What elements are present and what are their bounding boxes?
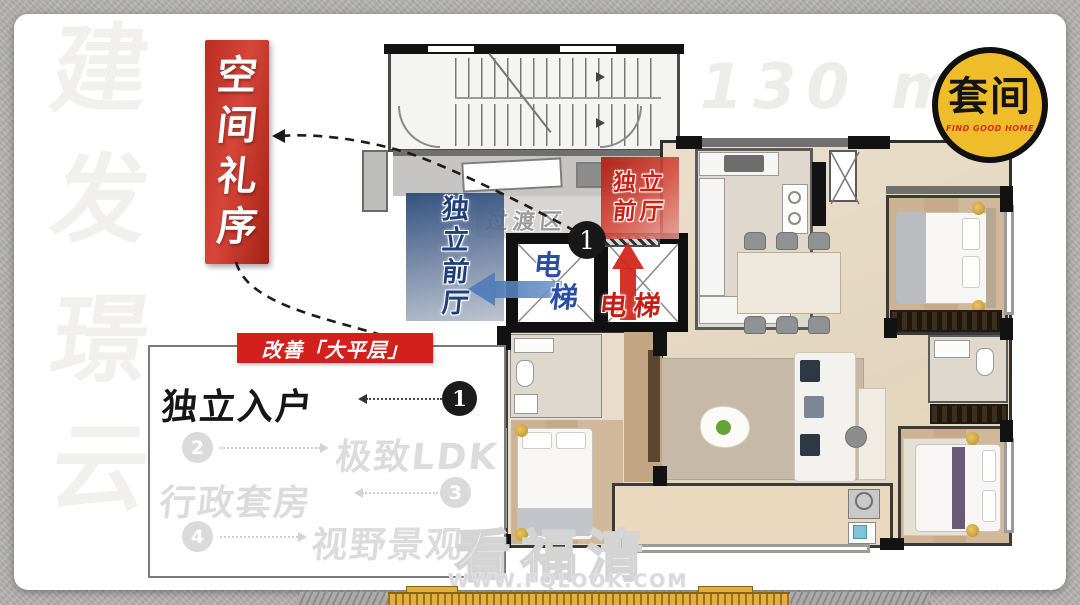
feature-3-number: 3	[440, 477, 471, 508]
feature-4-label: 视野景观	[309, 516, 466, 568]
feature-1-label: 独立入户	[159, 378, 316, 430]
feature-4-number: 4	[182, 521, 213, 552]
feature-3-label: 行政套房	[157, 474, 314, 526]
feature-1-number: 1	[442, 381, 477, 416]
feature-4-arrow	[298, 532, 307, 542]
taojian-logo: 套间 FIND GOOD HOME	[932, 47, 1048, 163]
feature-2-label: 极致LDK	[333, 428, 501, 480]
feature-2-arrow	[320, 443, 329, 453]
bottom-wedge-right	[788, 592, 930, 605]
promo-page: 建 发 璟 云 130 m2 过渡区	[0, 0, 1080, 605]
feature-3-arrow	[354, 488, 363, 498]
logo-name: 套间	[948, 77, 1032, 117]
improvement-tag: 改善「大平层」	[237, 333, 433, 363]
site-watermark-url: WWW.FQLOOK.COM	[448, 570, 688, 592]
bottom-wedge-left	[298, 592, 390, 605]
logo-tagline: FIND GOOD HOME	[946, 124, 1034, 133]
feature-1-arrow	[358, 394, 367, 404]
feature-2-number: 2	[182, 432, 213, 463]
logo-inner-circle: 套间 FIND GOOD HOME	[938, 53, 1042, 157]
bottom-roof-strip	[388, 592, 790, 605]
